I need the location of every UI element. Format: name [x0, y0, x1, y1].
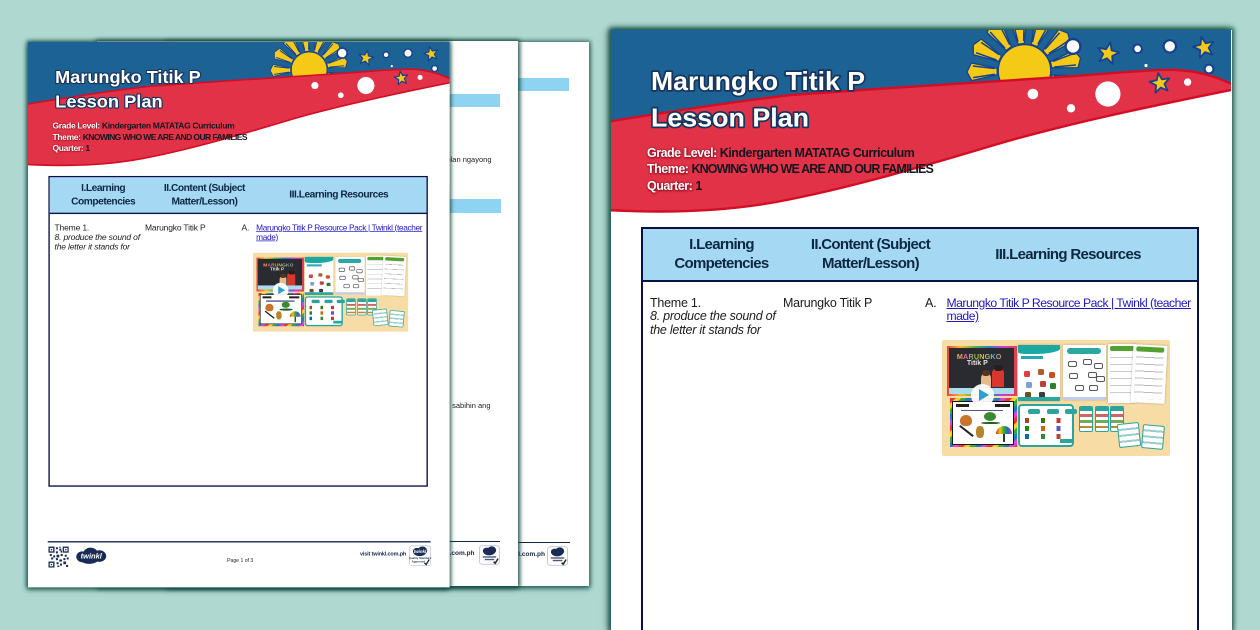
svg-text:twinkl: twinkl [413, 549, 426, 554]
svg-text:Approved: Approved [411, 559, 425, 563]
svg-text:Lesson Plan: Lesson Plan [651, 102, 809, 132]
svg-text:Marungko Titik P: Marungko Titik P [651, 66, 865, 96]
svg-text:twinkl: twinkl [80, 551, 102, 560]
svg-text:Marungko Titik P: Marungko Titik P [55, 66, 201, 86]
svg-text:Lesson Plan: Lesson Plan [55, 91, 162, 111]
